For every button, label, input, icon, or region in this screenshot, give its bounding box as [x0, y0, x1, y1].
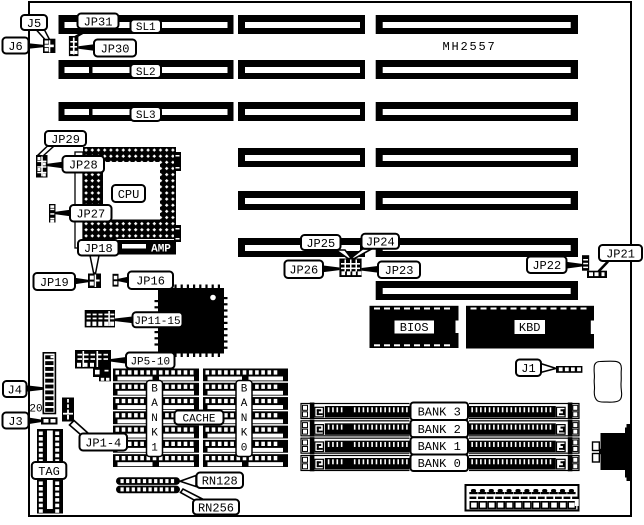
svg-text:JP21: JP21 — [606, 247, 635, 261]
svg-text:BIOS: BIOS — [400, 321, 429, 335]
svg-text:N: N — [241, 413, 248, 425]
svg-text:JP23: JP23 — [385, 264, 414, 278]
svg-text:JP28: JP28 — [69, 159, 98, 173]
svg-text:RN256: RN256 — [198, 501, 234, 515]
svg-text:RN128: RN128 — [202, 475, 238, 489]
svg-text:BANK 3: BANK 3 — [418, 406, 461, 420]
svg-text:SL2: SL2 — [136, 67, 156, 79]
svg-text:JP5-10: JP5-10 — [130, 356, 170, 368]
svg-text:SL1: SL1 — [136, 22, 156, 34]
svg-text:SL3: SL3 — [136, 110, 156, 122]
svg-text:JP25: JP25 — [306, 237, 335, 251]
svg-text:CACHE: CACHE — [182, 413, 215, 425]
svg-text:J1: J1 — [521, 362, 535, 376]
svg-text:K: K — [241, 428, 248, 440]
svg-text:BANK 0: BANK 0 — [418, 457, 461, 471]
svg-text:BANK 1: BANK 1 — [418, 440, 461, 454]
svg-text:J6: J6 — [8, 40, 22, 54]
svg-text:AMP: AMP — [151, 244, 171, 256]
svg-text:JP1-4: JP1-4 — [85, 436, 121, 450]
svg-text:1: 1 — [151, 442, 158, 454]
svg-text:B: B — [241, 384, 248, 396]
svg-text:CPU: CPU — [118, 188, 140, 202]
svg-text:J3: J3 — [8, 415, 22, 429]
svg-text:MH2557: MH2557 — [442, 40, 496, 54]
svg-text:KBD: KBD — [519, 321, 541, 335]
svg-text:0: 0 — [241, 442, 248, 454]
svg-text:20: 20 — [29, 404, 42, 416]
svg-text:N: N — [151, 413, 158, 425]
svg-text:JP29: JP29 — [51, 133, 80, 147]
svg-text:A: A — [151, 398, 158, 410]
svg-text:BANK 2: BANK 2 — [418, 423, 461, 437]
svg-text:J4: J4 — [8, 383, 22, 397]
svg-text:B: B — [151, 384, 158, 396]
svg-text:K: K — [151, 428, 158, 440]
svg-text:JP18: JP18 — [84, 242, 113, 256]
svg-text:JP11-15: JP11-15 — [134, 316, 180, 328]
svg-text:JP26: JP26 — [289, 264, 318, 278]
svg-text:JP19: JP19 — [40, 276, 69, 290]
svg-text:JP30: JP30 — [101, 42, 130, 56]
svg-text:JP16: JP16 — [136, 275, 165, 289]
svg-text:J5: J5 — [27, 17, 41, 31]
svg-text:JP22: JP22 — [532, 259, 561, 273]
svg-text:JP24: JP24 — [366, 236, 395, 250]
svg-text:JP31: JP31 — [84, 15, 113, 29]
svg-text:A: A — [241, 398, 248, 410]
svg-text:JP27: JP27 — [76, 208, 105, 222]
svg-text:TAG: TAG — [38, 465, 60, 479]
